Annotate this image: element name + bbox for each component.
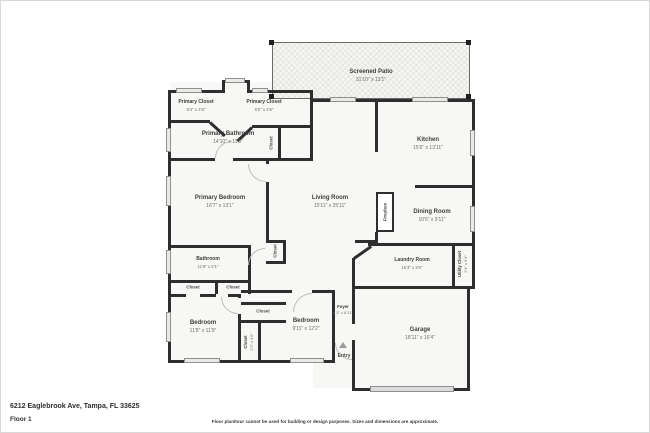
window bbox=[225, 78, 245, 83]
room-label-primary-closet-2: Primary Closet 5'5" x 4'5" bbox=[246, 99, 281, 113]
room-name: Bedroom bbox=[292, 317, 319, 326]
window bbox=[330, 97, 356, 102]
room-label-bedroom-2: Bedroom 9'11" x 12'2" bbox=[292, 317, 319, 334]
room-dims: 2'2" x 4'9" bbox=[249, 333, 255, 351]
window bbox=[166, 128, 171, 152]
room-name: Primary Closet bbox=[246, 99, 281, 107]
room-name: Bathroom bbox=[196, 256, 220, 264]
window bbox=[184, 358, 220, 363]
wall bbox=[258, 323, 261, 363]
room-dims: 10'6" x 9'11" bbox=[413, 217, 450, 225]
room-label-bedroom-1: Bedroom 11'8" x 11'9" bbox=[190, 319, 217, 336]
entry-label: Entry bbox=[338, 353, 351, 359]
wall bbox=[278, 128, 281, 158]
window bbox=[470, 206, 475, 232]
room-name: Primary Bathroom bbox=[202, 130, 254, 139]
room-dims: 5'4" x 4'5" bbox=[178, 107, 213, 113]
wall bbox=[233, 158, 313, 161]
garage-door bbox=[370, 386, 454, 392]
wall bbox=[168, 280, 251, 283]
room-name: Laundry Room bbox=[394, 257, 429, 265]
fireplace-label: Fireplace bbox=[383, 203, 388, 221]
wall bbox=[215, 280, 218, 294]
wall bbox=[252, 125, 313, 128]
room-name: Garage bbox=[405, 326, 435, 335]
room-dims: 11'8" x 11'9" bbox=[190, 328, 217, 336]
room-label-screened-patio: Screened Patio 31'10" x 13'1" bbox=[349, 68, 392, 85]
room-dims: 16'7" x 13'1" bbox=[195, 203, 245, 211]
wall bbox=[452, 243, 455, 286]
patio-post bbox=[269, 40, 274, 45]
room-label-kitchen: Kitchen 15'6" x 13'11" bbox=[413, 136, 443, 153]
window bbox=[176, 88, 202, 93]
wall bbox=[368, 243, 475, 246]
room-label-foyer: Foyer 4'3" x 8'11" bbox=[333, 304, 352, 316]
room-name: Kitchen bbox=[413, 136, 443, 145]
window bbox=[470, 130, 475, 156]
room-label-bathroom: Bathroom 11'8" x 5'1" bbox=[196, 256, 220, 270]
wall bbox=[168, 245, 248, 248]
wall bbox=[241, 320, 286, 323]
wall bbox=[467, 286, 470, 390]
wall bbox=[241, 290, 292, 293]
wall bbox=[415, 185, 475, 188]
window bbox=[166, 176, 171, 206]
room-name: Primary Closet bbox=[178, 99, 213, 107]
closet-label: Closet bbox=[269, 136, 274, 149]
floorplan-page: Fireplace Screened Patio 31'10" x 13'1" … bbox=[0, 0, 650, 433]
entry-arrow-icon bbox=[339, 342, 347, 348]
room-label-primary-closet-1: Primary Closet 5'4" x 4'5" bbox=[178, 99, 213, 113]
wall bbox=[355, 286, 475, 289]
room-dims: 15'11" x 25'11" bbox=[312, 203, 348, 211]
room-name: Dining Room bbox=[413, 208, 450, 217]
window bbox=[166, 312, 171, 342]
wall bbox=[375, 99, 378, 152]
wall bbox=[266, 158, 269, 164]
disclaimer-text: Floor plan/tour cannot be used for build… bbox=[0, 419, 650, 424]
closet-label: Closet bbox=[226, 285, 239, 290]
wall bbox=[355, 240, 378, 243]
wall bbox=[352, 258, 355, 289]
room-name: Screened Patio bbox=[349, 68, 392, 77]
wall bbox=[241, 302, 286, 305]
wall bbox=[238, 294, 241, 298]
window bbox=[290, 358, 324, 363]
house-fill-garage bbox=[313, 287, 468, 388]
room-dims: 2'4" x 5'4" bbox=[463, 251, 469, 277]
room-label-garage: Garage 18'11" x 16'4" bbox=[405, 326, 435, 343]
address-text: 6212 Eaglebrook Ave, Tampa, FL 33625 bbox=[10, 403, 140, 410]
wall bbox=[200, 294, 216, 297]
room-label-primary-bedroom: Primary Bedroom 16'7" x 13'1" bbox=[195, 194, 245, 211]
room-dims: 11'8" x 5'1" bbox=[196, 264, 220, 270]
room-label-dining-room: Dining Room 10'6" x 9'11" bbox=[413, 208, 450, 225]
wall bbox=[266, 261, 286, 264]
room-dims: 16'3" x 5'6" bbox=[394, 265, 429, 271]
room-dims: 14'10" x 11'5" bbox=[202, 139, 254, 147]
patio-post bbox=[466, 40, 471, 45]
window bbox=[412, 97, 448, 102]
room-label-laundry-room: Laundry Room 16'3" x 5'6" bbox=[394, 257, 429, 271]
room-dims: 9'11" x 12'2" bbox=[292, 326, 319, 334]
room-dims: 31'10" x 13'1" bbox=[349, 77, 392, 85]
room-dims: 18'11" x 16'4" bbox=[405, 335, 435, 343]
wall bbox=[352, 340, 355, 390]
room-name: Primary Bedroom bbox=[195, 194, 245, 203]
wall bbox=[472, 99, 475, 289]
wall bbox=[332, 290, 335, 363]
wall bbox=[168, 294, 186, 297]
room-label-living-room: Living Room 15'11" x 25'11" bbox=[312, 194, 348, 211]
room-dims: 4'3" x 8'11" bbox=[333, 310, 352, 316]
wall bbox=[168, 120, 210, 123]
room-label-hall-closet: Closet 2'2" x 4'9" bbox=[243, 333, 255, 351]
closet-label: Closet bbox=[256, 309, 269, 314]
window bbox=[252, 88, 268, 93]
closet-label: Closet bbox=[186, 285, 199, 290]
closet-label: Closet bbox=[273, 244, 278, 257]
wall bbox=[168, 158, 215, 161]
room-label-primary-bathroom: Primary Bathroom 14'10" x 11'5" bbox=[202, 130, 254, 147]
window bbox=[166, 250, 171, 274]
room-name: Bedroom bbox=[190, 319, 217, 328]
room-name: Living Room bbox=[312, 194, 348, 203]
wall bbox=[266, 182, 269, 240]
room-label-utility-closet: Utility Closet 2'4" x 5'4" bbox=[457, 251, 469, 277]
room-dims: 5'5" x 4'5" bbox=[246, 107, 281, 113]
room-dims: 15'6" x 13'11" bbox=[413, 145, 443, 153]
